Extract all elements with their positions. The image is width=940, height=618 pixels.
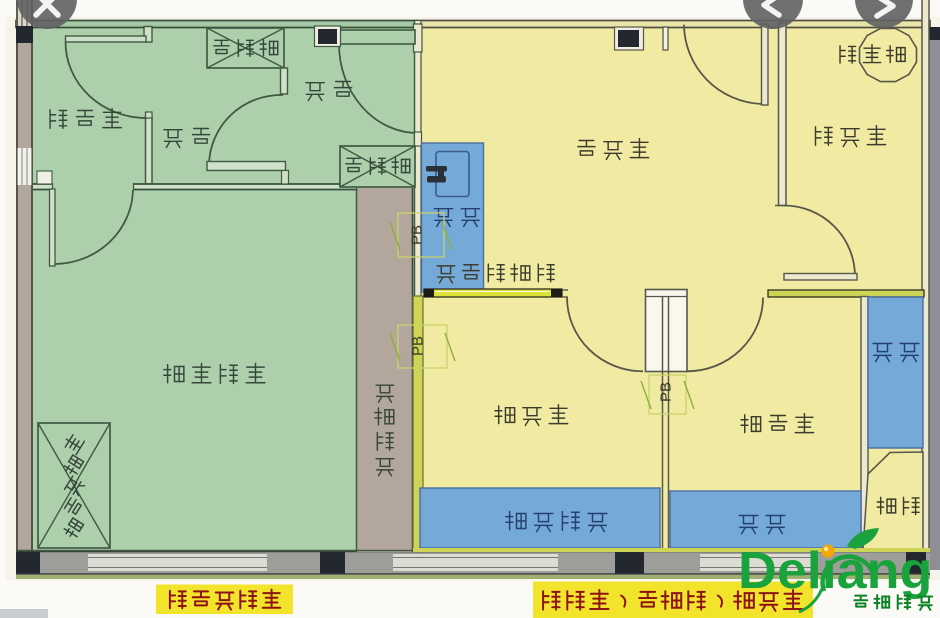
svg-text:PB: PB — [410, 336, 427, 356]
svg-text:PB: PB — [658, 382, 675, 402]
svg-text:PB: PB — [409, 225, 426, 245]
svg-text:Deliang: Deliang — [738, 542, 932, 600]
